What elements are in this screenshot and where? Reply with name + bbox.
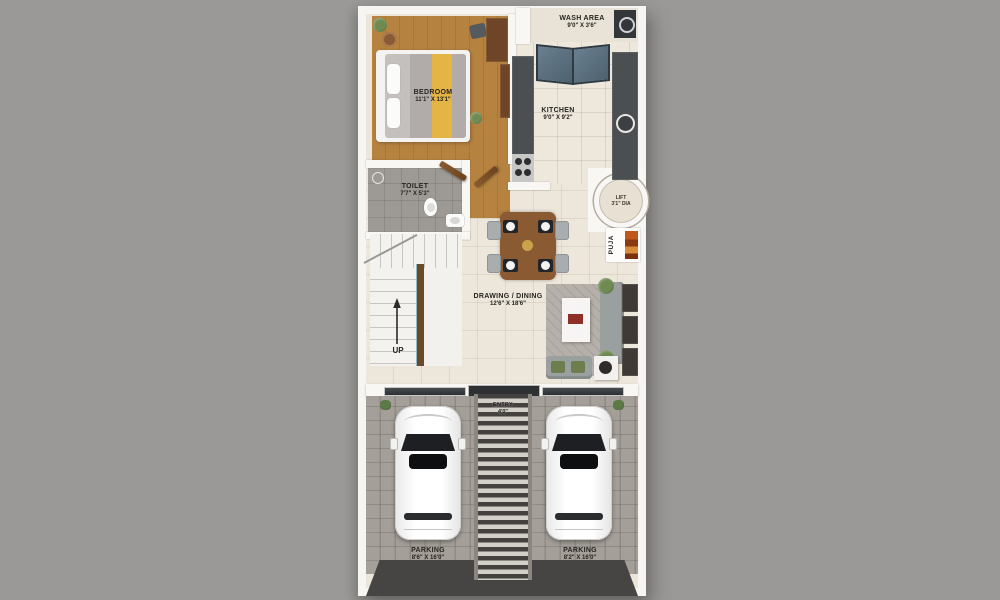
wash-area-dims: 9'0" X 3'6" [526, 23, 638, 31]
wall-toilet-right [462, 160, 470, 240]
bedroom-wardrobe [500, 64, 510, 118]
bedroom-dims: 11'1" X 13'1" [388, 97, 478, 105]
entry-dims: 4'0" [474, 409, 532, 416]
car-left [395, 406, 461, 540]
entry-label: ENTRY 4'0" [474, 402, 532, 416]
sofa-bottom [546, 356, 592, 379]
parking-left-label: PARKING 8'6" X 16'0" [378, 546, 478, 563]
floor-plan: UP LIFT 3'1" DIA PUJA [358, 6, 646, 596]
plant-icon [598, 278, 614, 294]
puja-label: PUJA [608, 235, 615, 254]
washbasin-icon [446, 214, 464, 227]
dining-table [500, 212, 556, 280]
bedroom-desk [486, 18, 508, 62]
dining-chair-icon [555, 254, 569, 273]
side-cabinet [622, 348, 638, 376]
parking-right-dims: 8'2" X 16'0" [530, 555, 630, 563]
bedroom-name: BEDROOM [388, 88, 478, 97]
lift: LIFT 3'1" DIA [594, 174, 648, 228]
parking-right-label: PARKING 8'2" X 16'0" [530, 546, 630, 563]
entry-walkway [474, 394, 532, 580]
kitchen-window-glass-left [536, 44, 574, 85]
drawing-dining-dims: 12'6" X 18'6" [448, 301, 568, 309]
kitchen-dims: 9'0" X 9'2" [518, 115, 598, 123]
wash-area-label: WASH AREA 9'0" X 3'6" [526, 14, 638, 31]
plant-icon [470, 112, 482, 124]
kitchen-name: KITCHEN [518, 106, 598, 115]
stairs-up-label: UP [384, 346, 412, 355]
plant-icon [373, 18, 387, 32]
side-cabinet [622, 316, 638, 344]
stair-railing [416, 264, 424, 366]
toilet-label: TOILET 7'7" X 5'3" [374, 182, 456, 199]
front-window-right [542, 387, 624, 396]
dining-chair-icon [555, 221, 569, 240]
lift-name: LIFT [616, 195, 627, 201]
dining-chair-icon [487, 254, 501, 273]
toilet-icon [424, 198, 437, 216]
bedroom-label: BEDROOM 11'1" X 13'1" [388, 88, 478, 105]
decor-icon [599, 361, 612, 374]
parking-right-name: PARKING [530, 546, 630, 555]
kitchen-label: KITCHEN 9'0" X 9'2" [518, 106, 598, 123]
puja-shrine-icon [625, 231, 638, 259]
wash-area-name: WASH AREA [526, 14, 638, 23]
side-cabinet [622, 284, 638, 312]
drawing-dining-label: DRAWING / DINING 12'6" X 18'6" [448, 292, 568, 309]
parking-left-name: PARKING [378, 546, 478, 555]
car-right [546, 406, 612, 540]
kitchen-counter-right [612, 52, 638, 180]
lift-dims: 3'1" DIA [611, 201, 630, 207]
toilet-name: TOILET [374, 182, 456, 191]
puja-unit: PUJA [606, 228, 640, 262]
toilet-dims: 7'7" X 5'3" [374, 191, 456, 199]
dining-chair-icon [487, 221, 501, 240]
bedside-table-icon [382, 32, 397, 47]
bush-icon [613, 400, 624, 410]
drawing-dining-name: DRAWING / DINING [448, 292, 568, 301]
up-arrow-icon [392, 298, 402, 344]
table-centerpiece-icon [522, 240, 533, 251]
bush-icon [380, 400, 391, 410]
parking-left-dims: 8'6" X 16'0" [378, 555, 478, 563]
front-window-left [384, 387, 466, 396]
kitchen-window-glass-right [572, 44, 610, 85]
wall-bedroom-toilet [366, 160, 470, 168]
stove-icon [512, 154, 534, 182]
screenshot-root: { "plan": { "bedroom": { "name": "BEDROO… [0, 0, 1000, 600]
books-icon [568, 314, 583, 324]
corner-table [594, 356, 618, 380]
sink-icon [616, 114, 635, 133]
wall-kitchen-bottom-left [508, 182, 550, 190]
